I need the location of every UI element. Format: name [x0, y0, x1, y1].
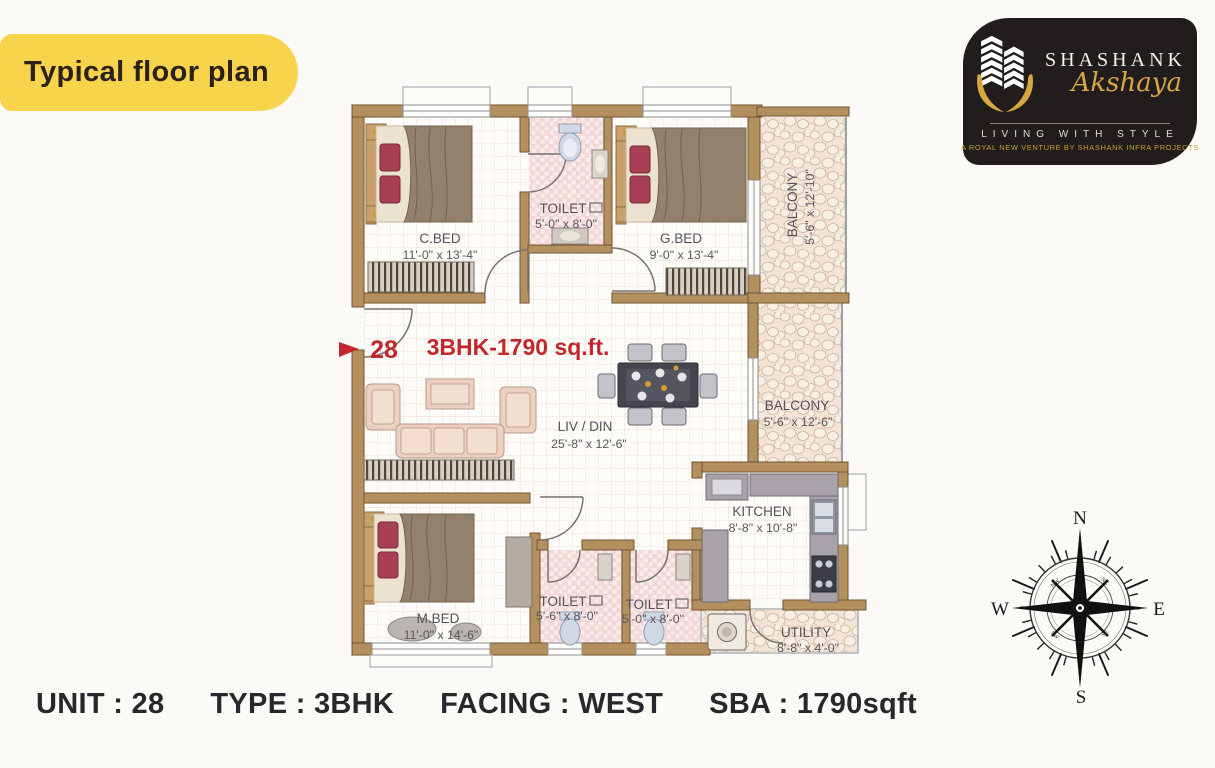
balcony-mid-dims: 5'-6" x 12'-6" [764, 415, 833, 429]
kitchen-label: KITCHEN [732, 504, 791, 519]
compass-south-label: S [1076, 687, 1087, 708]
compass-west-label: W [991, 599, 1009, 620]
logo-text: SHASHANK Akshaya [1045, 49, 1186, 98]
brand-script-name: Akshaya [1072, 68, 1182, 98]
plan-area-title: 3BHK-1790 sq.ft. [427, 334, 610, 360]
compass-sw-label: SW [1049, 630, 1060, 641]
logo-row: SHASHANK Akshaya [974, 32, 1186, 116]
logo-subtext: A ROYAL NEW VENTURE BY SHASHANK INFRA PR… [961, 143, 1199, 152]
utility-fittings [708, 614, 746, 650]
utility-label: UTILITY [781, 625, 831, 640]
mbed-label: M.BED [417, 611, 460, 626]
balcony-top-dims: 5'-6" x 12'-10" [803, 169, 817, 245]
compass-rose-icon: N E S W NW NE SW SE [990, 500, 1175, 715]
stove [812, 556, 836, 592]
cbed-wardrobe [368, 262, 474, 292]
gbed-dims: 9'-0" x 13'-4" [650, 248, 719, 262]
cbed-furniture [366, 124, 474, 292]
toilet1-dims: 5'-6" x 8'-0" [536, 609, 598, 623]
toilet2-label: TOILET [625, 597, 672, 612]
page: Typical floor plan SHASHANK [0, 0, 1215, 768]
livdin-dims: 25'-8" x 12'-6" [551, 437, 627, 451]
spec-type: TYPE : 3BHK [210, 688, 394, 721]
spec-unit: UNIT : 28 [36, 688, 164, 721]
balcony-top-label: BALCONY [785, 173, 800, 238]
floor-plan: 28 3BHK-1790 sq.ft. C.BED 11'-0" x 13'-4… [330, 80, 875, 675]
logo-divider [990, 123, 1170, 124]
toilet2-dims: 5'-0" x 8'-0" [622, 612, 684, 626]
tv-unit [364, 460, 514, 480]
livdin-label: LIV / DIN [558, 419, 613, 434]
compass-east-label: E [1153, 599, 1165, 620]
cbed-dims: 11'-0" x 13'-4" [403, 248, 478, 262]
unit-number: 28 [370, 336, 398, 364]
mbed-dresser [506, 537, 532, 607]
toilet-top-label: TOILET [539, 201, 586, 216]
spec-facing: FACING : WEST [440, 688, 663, 721]
page-title: Typical floor plan [24, 56, 269, 89]
compass-north-label: N [1073, 508, 1087, 529]
unit-specs: UNIT : 28 TYPE : 3BHK FACING : WEST SBA … [36, 688, 917, 721]
mbed-dims: 11'-0" x 14'-6" [404, 628, 479, 642]
balcony-mid-floor [758, 303, 841, 462]
kitchen-dims: 8'-8" x 10'-8" [729, 521, 798, 535]
logo-tagline: LIVING WITH STYLE [981, 129, 1179, 140]
cbed-label: C.BED [419, 231, 461, 246]
balcony-mid-label: BALCONY [765, 398, 830, 413]
buildings-hands-icon [974, 32, 1036, 116]
title-badge: Typical floor plan [0, 34, 298, 111]
builder-logo: SHASHANK Akshaya LIVING WITH STYLE A ROY… [963, 18, 1197, 165]
toilet1-label: TOILET [539, 594, 586, 609]
spec-sba: SBA : 1790sqft [709, 688, 917, 721]
gbed-wardrobe [666, 268, 746, 295]
gbed-label: G.BED [660, 231, 702, 246]
toilet-top-dims: 5'-0" x 8'-0" [535, 217, 597, 231]
living-furniture [364, 379, 536, 480]
utility-dims: 8'-8" x 4'-0" [777, 641, 839, 655]
